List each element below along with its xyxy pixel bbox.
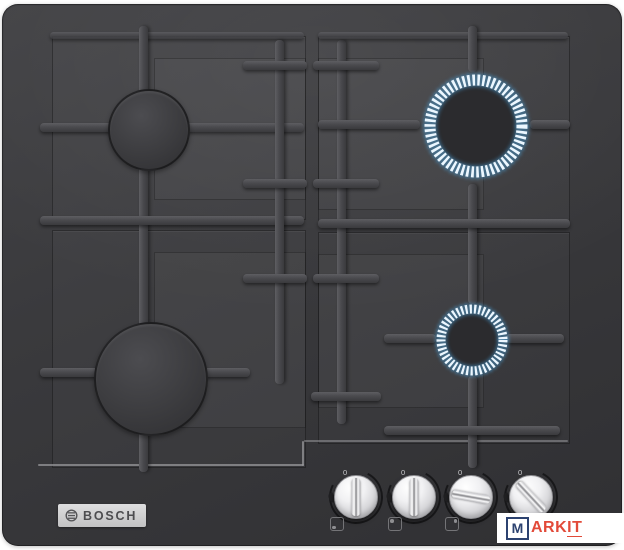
grate-bar — [318, 120, 420, 129]
burner-position-icon — [388, 517, 402, 531]
panel-step-edge — [38, 464, 304, 466]
flame-ring-back-right — [411, 61, 541, 191]
grate-bar — [313, 274, 379, 283]
watermark-ark: ARK — [531, 519, 567, 537]
watermark-it: IT — [567, 519, 582, 537]
bosch-badge: BOSCH — [58, 504, 146, 527]
grate-bar — [318, 219, 570, 228]
grate-bar — [313, 61, 379, 70]
product-photo-gas-hob: 0 0 0 0 BOSCH — [0, 0, 624, 550]
grate-bar — [243, 61, 307, 70]
grate-bar — [50, 32, 304, 39]
grate-bar — [468, 184, 477, 304]
knob-back-left: 0 — [386, 469, 442, 525]
grate-bar — [318, 32, 568, 39]
grate-bar — [384, 426, 560, 435]
grate-bar — [40, 216, 304, 225]
burner-cap-front-left — [94, 322, 208, 436]
position-dot — [390, 519, 394, 523]
flame-ring-front-right — [427, 295, 517, 385]
grate-bar — [243, 179, 307, 188]
knob-front-left: 0 — [328, 469, 384, 525]
burner-position-icon — [445, 517, 459, 531]
bosch-wordmark: BOSCH — [83, 509, 137, 523]
burner-cap-back-left — [108, 89, 190, 171]
zero-marker: 0 — [458, 468, 462, 477]
watermark-m: M — [506, 517, 529, 540]
panel-step-edge — [304, 440, 568, 442]
zero-marker: 0 — [401, 468, 405, 477]
knob-back-right: 0 — [443, 469, 499, 525]
position-dot — [454, 519, 458, 523]
grate-bar — [243, 274, 307, 283]
grate-bar — [275, 40, 284, 384]
grate-bar — [313, 179, 379, 188]
grate-bar — [311, 392, 381, 401]
knob-pointer — [352, 478, 361, 516]
panel-step-edge — [302, 441, 304, 466]
knob-pointer — [410, 478, 419, 516]
markit-watermark: M ARK IT — [497, 513, 624, 543]
zero-marker: 0 — [518, 468, 522, 477]
position-dot — [332, 526, 336, 530]
bosch-logo-icon — [65, 509, 78, 522]
grate-bar — [468, 376, 477, 468]
zero-marker: 0 — [343, 468, 347, 477]
grate-bar — [337, 40, 346, 424]
burner-position-icon — [330, 517, 344, 531]
